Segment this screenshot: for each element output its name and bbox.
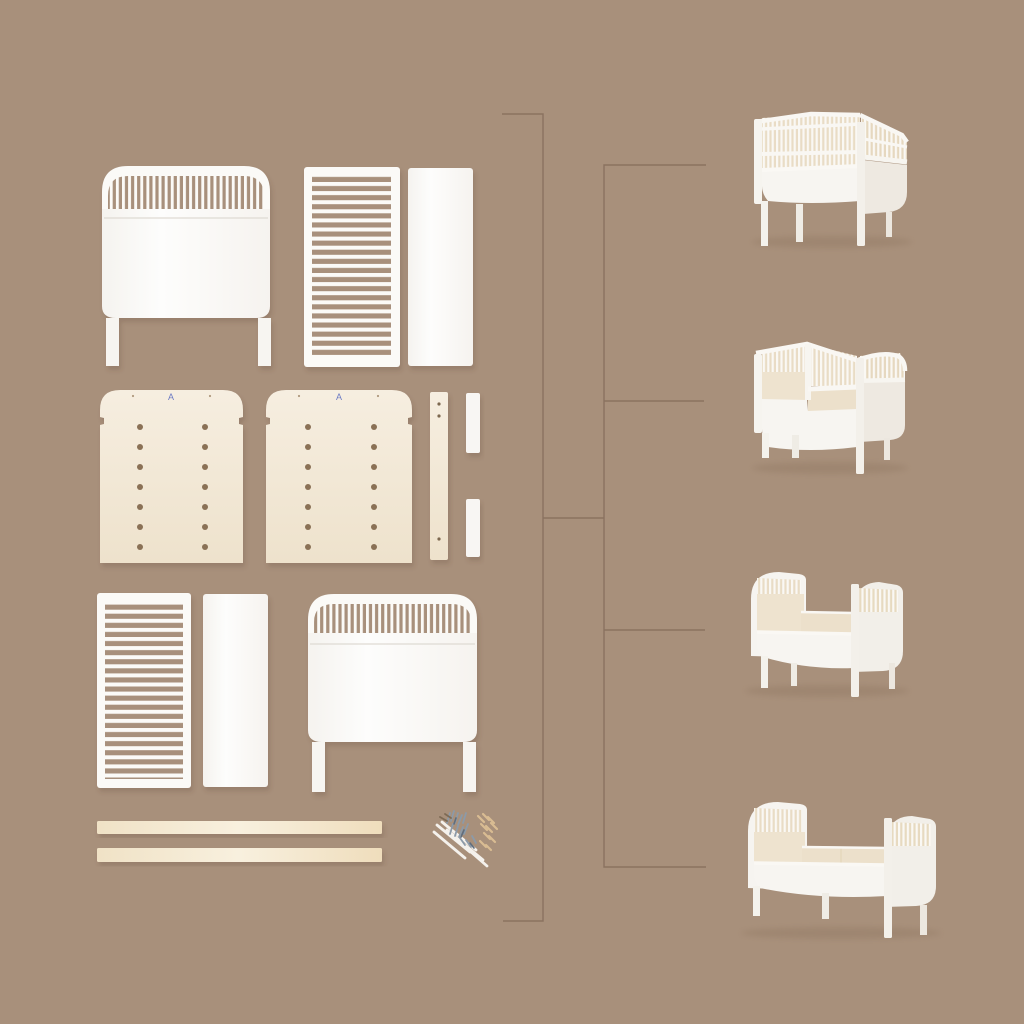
svg-text:A: A <box>168 392 174 402</box>
svg-text:A: A <box>336 392 342 402</box>
